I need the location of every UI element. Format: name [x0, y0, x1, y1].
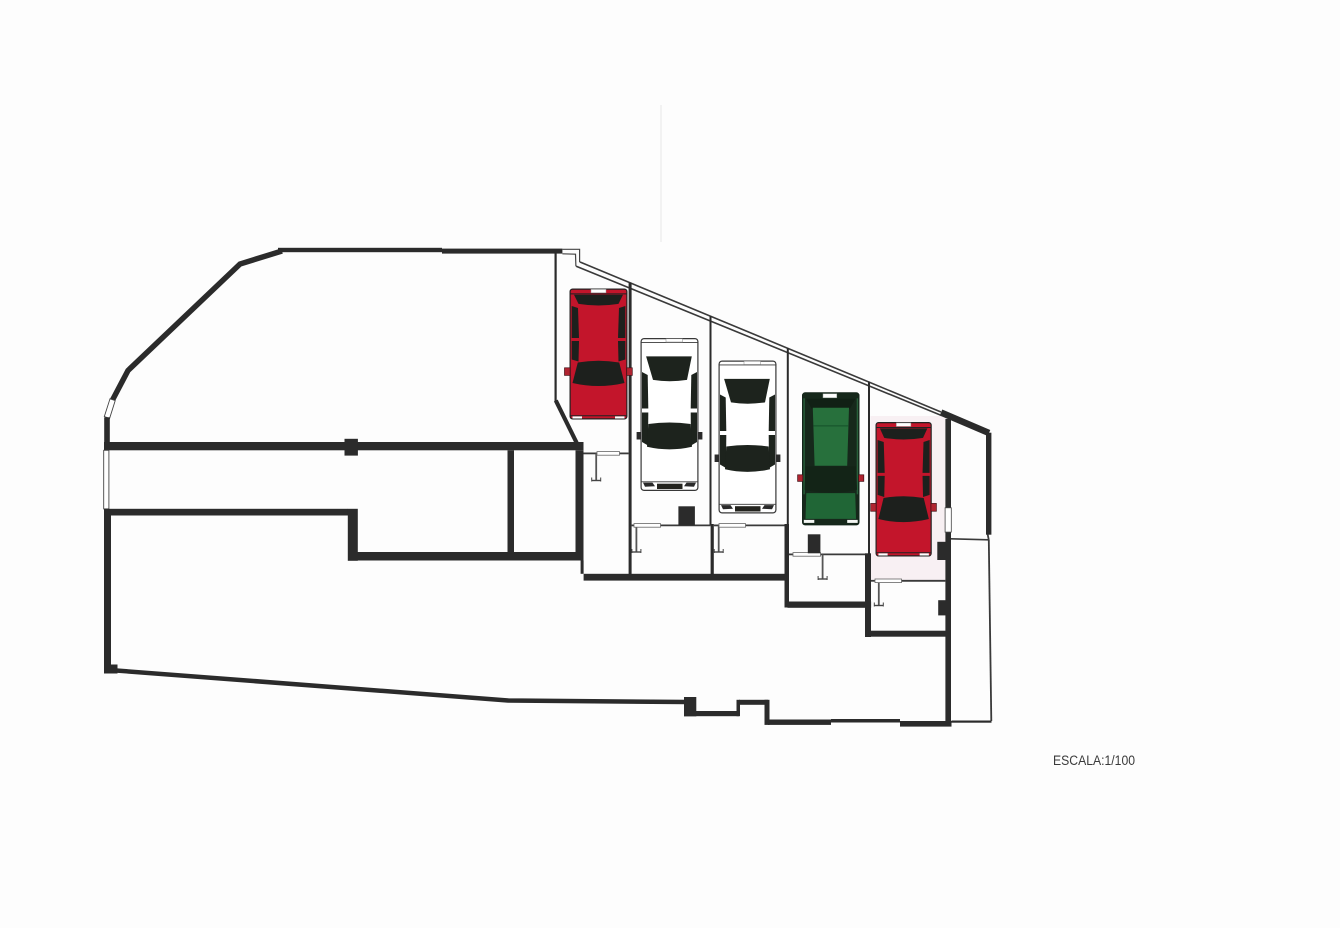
svg-text:ESCALA:1/100: ESCALA:1/100 [1053, 753, 1135, 768]
